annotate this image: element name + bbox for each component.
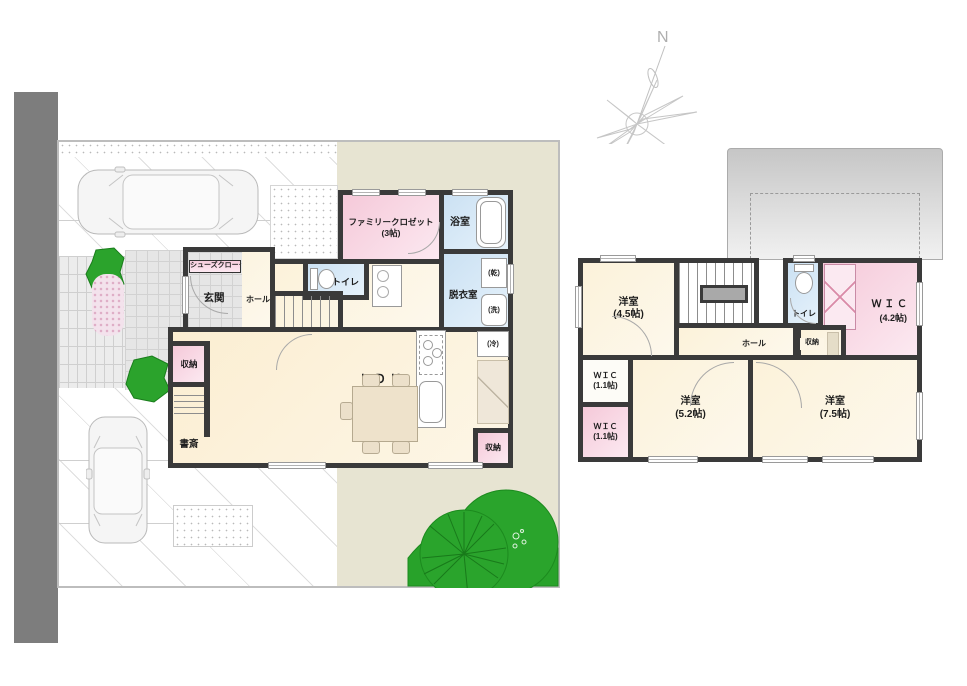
window <box>600 255 636 262</box>
porch-pad <box>270 185 338 259</box>
wall-stub <box>204 341 210 437</box>
window <box>575 286 582 328</box>
room-label: ＷＩＣ <box>594 422 618 432</box>
window <box>648 456 698 463</box>
car-bottom <box>86 414 150 546</box>
storage-2f-label: 収納 <box>800 338 824 350</box>
compass-north-label: N <box>657 29 669 46</box>
car-top <box>75 166 261 238</box>
roof-dashed-line <box>750 193 920 259</box>
window <box>793 255 815 262</box>
room-size: (7.5帖) <box>820 409 851 422</box>
terrace-pad <box>173 505 253 547</box>
room-label: 浴室 <box>450 217 470 230</box>
room-label: Ｌ Ｄ Ｋ <box>330 370 430 387</box>
room-label: ＷＩＣ <box>594 371 618 381</box>
room-label: 脱衣室 <box>449 290 478 302</box>
toilet-icon <box>794 264 814 272</box>
bathtub-inner <box>480 201 502 244</box>
room-label: 洋室 <box>619 297 639 310</box>
window <box>268 462 326 469</box>
toilet-bowl-icon <box>795 272 813 294</box>
kitchen-sink-icon <box>419 381 443 423</box>
hall-1f-label: ホール <box>243 294 273 305</box>
window <box>352 189 380 196</box>
fridge-icon: (冷) <box>477 331 509 357</box>
dryer-label: (乾) <box>488 268 500 278</box>
dining-table <box>352 386 418 442</box>
room-label: 収納 <box>485 443 501 453</box>
window <box>507 264 514 294</box>
room-size: (3帖) <box>382 228 401 239</box>
shoes-cloak-label: シューズクローク <box>189 260 241 273</box>
toilet-bowl-icon <box>318 269 335 289</box>
hall-2f-label: ホール <box>738 338 770 349</box>
washer-icon: (洗) <box>481 294 507 326</box>
window <box>916 392 923 440</box>
stairs-1f <box>270 291 343 332</box>
room-label: Ｗ Ｉ Ｃ <box>871 299 907 312</box>
room-wic-1-1-lower: ＷＩＣ (1.1帖) <box>578 402 633 462</box>
stove-icon <box>419 335 443 375</box>
dining-chair <box>392 441 410 454</box>
room-label: 収納 <box>180 359 197 370</box>
dining-chair <box>362 441 380 454</box>
garden-tree-icon <box>398 478 560 588</box>
floor-plan-canvas: ファミリークロゼット (3帖) 浴室 脱衣室 (乾) (洗) トイレ 玄関 ホー… <box>0 0 967 686</box>
concrete-apron-top <box>59 142 337 157</box>
study-shelf <box>174 390 204 414</box>
wic-closet-hatch <box>824 264 856 330</box>
pantry-shelf <box>477 360 509 424</box>
study-label: 書斎 <box>174 436 204 450</box>
dryer-icon: (乾) <box>481 258 507 288</box>
stair-landing <box>700 285 748 303</box>
bush-icon <box>124 354 172 404</box>
window <box>428 462 483 469</box>
compass-rose: N <box>595 12 725 144</box>
toilet-icon <box>310 268 318 290</box>
entrance-door-opening <box>182 276 189 314</box>
washer-label: (洗) <box>488 305 500 315</box>
window <box>762 456 808 463</box>
room-size: (1.1帖) <box>593 432 617 442</box>
window <box>822 456 874 463</box>
fridge-label: (冷) <box>487 339 499 349</box>
window <box>452 189 488 196</box>
room-label: トイレ <box>332 277 359 288</box>
road-strip <box>14 92 58 643</box>
vanity-icon <box>372 265 402 307</box>
flower-shrub <box>92 274 124 336</box>
window <box>398 189 426 196</box>
room-size: (5.2帖) <box>675 409 706 422</box>
room-wic-1-1-upper: ＷＩＣ (1.1帖) <box>578 355 633 407</box>
window <box>916 282 923 326</box>
room-size: (4.2帖) <box>879 313 907 324</box>
room-size: (1.1帖) <box>593 381 617 391</box>
room-label: 洋室 <box>825 396 845 409</box>
room-bedroom-5-2: 洋室 (5.2帖) <box>628 355 753 462</box>
